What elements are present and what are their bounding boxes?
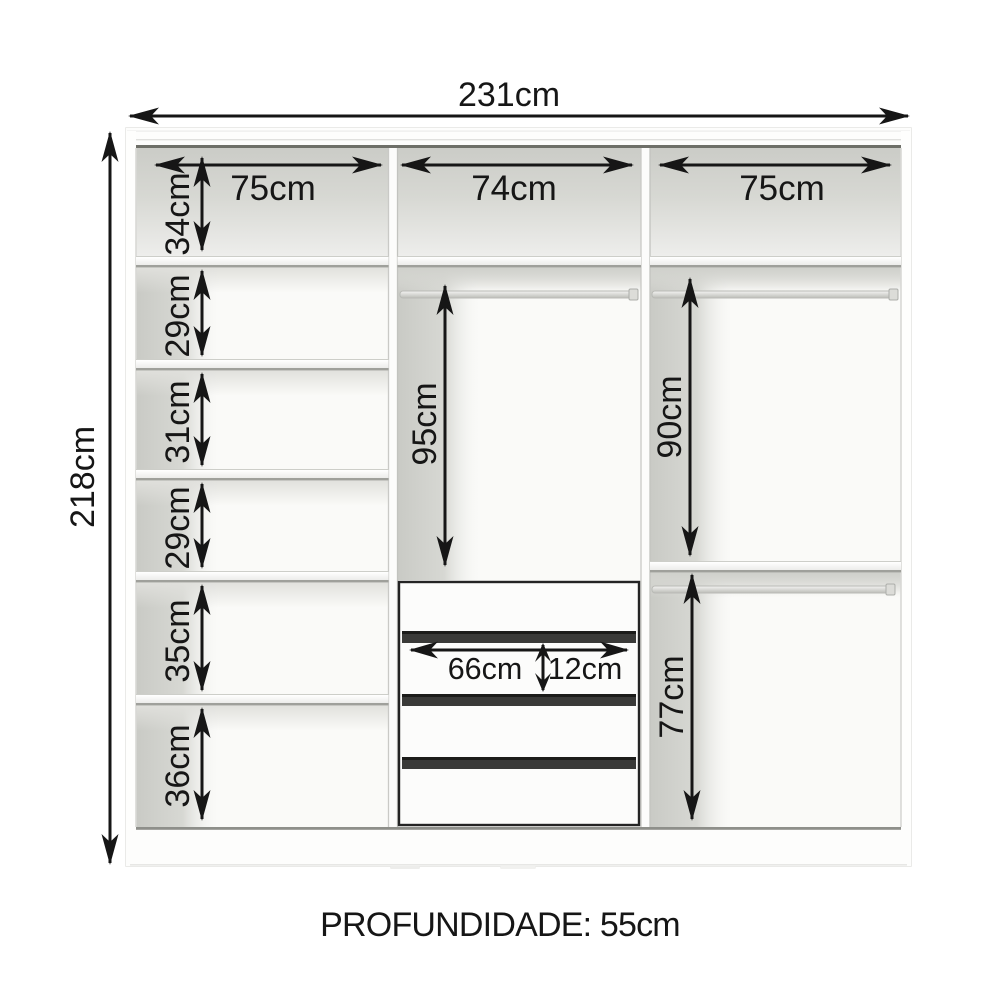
svg-text:74cm: 74cm [471,169,557,208]
svg-text:75cm: 75cm [230,169,316,208]
svg-text:29cm: 29cm [159,274,197,357]
svg-text:PROFUNDIDADE: 55cm: PROFUNDIDADE: 55cm [320,906,680,944]
svg-text:31cm: 31cm [159,380,197,463]
svg-text:77cm: 77cm [653,655,691,738]
svg-text:95cm: 95cm [406,382,444,465]
svg-text:75cm: 75cm [739,169,825,208]
svg-text:90cm: 90cm [651,375,689,458]
svg-text:218cm: 218cm [64,426,102,528]
svg-text:34cm: 34cm [159,172,197,255]
svg-text:66cm: 66cm [448,652,523,686]
svg-text:231cm: 231cm [458,76,560,114]
svg-text:35cm: 35cm [159,599,197,682]
svg-text:12cm: 12cm [548,652,623,686]
svg-text:36cm: 36cm [159,724,197,807]
svg-text:29cm: 29cm [159,486,197,569]
